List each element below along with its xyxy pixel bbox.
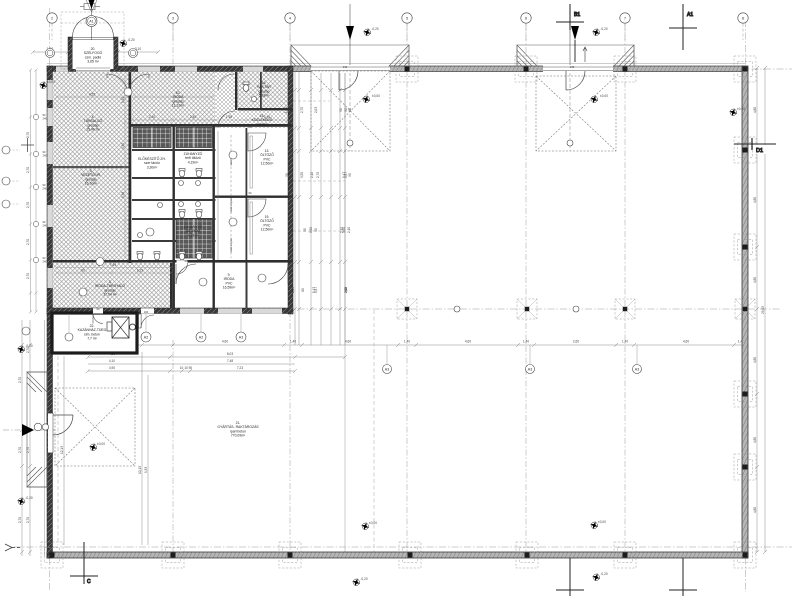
svg-text:A2: A2: [144, 335, 148, 339]
svg-text:±0,00: ±0,00: [600, 94, 608, 98]
svg-text:2,10: 2,10: [347, 227, 351, 233]
svg-text:90: 90: [348, 173, 352, 177]
svg-text:±0,00: ±0,00: [369, 521, 377, 525]
svg-text:2,60: 2,60: [573, 340, 579, 344]
svg-text:2,70: 2,70: [26, 517, 30, 523]
svg-text:szekrenysor: szekrenysor: [229, 237, 233, 252]
svg-text:90: 90: [314, 228, 318, 232]
svg-text:3,65 m²: 3,65 m²: [87, 60, 99, 64]
svg-text:5,18m²: 5,18m²: [259, 94, 270, 98]
svg-text:240: 240: [43, 117, 48, 121]
svg-text:4,60: 4,60: [683, 340, 689, 344]
svg-text:12,13: 12,13: [60, 446, 64, 454]
svg-text:-0,20: -0,20: [600, 27, 607, 31]
svg-text:3,30m²: 3,30m²: [147, 165, 158, 169]
svg-text:szekrenysor: szekrenysor: [229, 197, 233, 212]
svg-text:8: 8: [742, 16, 744, 20]
svg-text:4,10: 4,10: [109, 359, 115, 363]
svg-text:4,60: 4,60: [345, 340, 351, 344]
svg-text:16,10m²: 16,10m²: [85, 182, 98, 186]
svg-text:90: 90: [339, 108, 343, 112]
svg-text:2,70: 2,70: [26, 447, 30, 453]
svg-text:7: 7: [624, 16, 626, 20]
svg-text:240: 240: [43, 154, 48, 158]
svg-text:±0,00: ±0,00: [737, 107, 745, 111]
svg-text:5: 5: [406, 16, 408, 20]
svg-text:11,12m²: 11,12m²: [172, 104, 185, 108]
svg-text:-0,20: -0,20: [360, 577, 367, 581]
svg-text:4: 4: [289, 16, 291, 20]
svg-text:9,33: 9,33: [144, 467, 148, 473]
svg-text:2,40: 2,40: [149, 115, 155, 119]
svg-text:2,70: 2,70: [26, 167, 30, 173]
svg-text:-0,20: -0,20: [25, 344, 32, 348]
svg-text:16,59m²: 16,59m²: [223, 286, 236, 290]
svg-text:37,04 m²: 37,04 m²: [103, 293, 117, 297]
svg-text:±0,00: ±0,00: [598, 520, 606, 524]
svg-text:2,70: 2,70: [26, 273, 30, 279]
svg-text:4,19m²: 4,19m²: [188, 233, 199, 237]
svg-text:5,10: 5,10: [121, 97, 125, 103]
svg-text:D1: D1: [756, 148, 763, 154]
svg-text:2,70: 2,70: [26, 202, 30, 208]
svg-text:-0,20: -0,20: [371, 27, 378, 31]
svg-text:2,70: 2,70: [26, 239, 30, 245]
svg-text:5,38: 5,38: [121, 192, 125, 198]
svg-text:7,23: 7,23: [237, 366, 243, 370]
svg-text:15,46 m²: 15,46 m²: [86, 128, 100, 132]
svg-text:7,48: 7,48: [227, 359, 233, 363]
svg-text:12,50m²: 12,50m²: [261, 228, 274, 232]
svg-text:A1: A1: [89, 19, 93, 23]
svg-text:A1: A1: [687, 12, 693, 18]
svg-text:A3: A3: [528, 367, 532, 371]
svg-text:-0,20: -0,20: [127, 38, 134, 42]
svg-text:4,80: 4,80: [753, 437, 757, 443]
svg-text:B1: B1: [574, 12, 580, 18]
svg-text:2,10: 2,10: [344, 287, 348, 293]
svg-text:A3: A3: [239, 335, 243, 339]
svg-text:4,30: 4,30: [121, 143, 125, 149]
svg-text:60: 60: [301, 288, 305, 292]
svg-text:10,13: 10,13: [138, 466, 142, 474]
svg-text:2,03: 2,03: [314, 107, 318, 113]
svg-text:2,70: 2,70: [316, 172, 320, 178]
svg-text:±0,00: ±0,00: [97, 442, 105, 446]
svg-text:C: C: [87, 579, 91, 585]
svg-text:29,05: 29,05: [761, 306, 765, 314]
svg-text:8,03: 8,03: [227, 352, 233, 356]
svg-text:4,80: 4,80: [753, 277, 757, 283]
svg-text:4,80: 4,80: [753, 357, 757, 363]
svg-text:60: 60: [81, 269, 85, 273]
svg-text:±0,00: ±0,00: [47, 80, 55, 84]
svg-text:2,70: 2,70: [300, 107, 304, 113]
svg-text:greslap: greslap: [256, 122, 267, 126]
svg-text:100: 100: [144, 310, 149, 314]
svg-text:2,70: 2,70: [18, 447, 22, 453]
svg-text:2,10: 2,10: [340, 227, 344, 233]
svg-text:1,40: 1,40: [404, 340, 410, 344]
svg-text:240: 240: [570, 65, 575, 69]
svg-text:2,70: 2,70: [18, 377, 22, 383]
svg-text:4,19m²: 4,19m²: [188, 160, 199, 164]
svg-text:240: 240: [43, 260, 48, 264]
svg-text:±0,00: ±0,00: [372, 94, 380, 98]
svg-text:3: 3: [172, 16, 174, 20]
svg-text:240: 240: [43, 187, 48, 191]
svg-text:2,40: 2,40: [190, 115, 196, 119]
svg-text:3,50: 3,50: [309, 227, 313, 233]
svg-text:1,95: 1,95: [226, 115, 232, 119]
svg-text:1,40: 1,40: [622, 340, 628, 344]
svg-text:10 10 90: 10 10 90: [180, 366, 193, 370]
svg-text:4,80: 4,80: [753, 507, 757, 513]
svg-text:4,60: 4,60: [465, 340, 471, 344]
svg-text:3,50: 3,50: [300, 172, 304, 178]
svg-text:4,80: 4,80: [753, 107, 757, 113]
svg-text:4,60: 4,60: [222, 340, 228, 344]
svg-text:2,70: 2,70: [26, 132, 30, 138]
svg-text:4,90: 4,90: [109, 366, 115, 370]
svg-text:7,7 m²: 7,7 m²: [87, 337, 97, 341]
svg-text:2,70: 2,70: [18, 517, 22, 523]
svg-text:12,50m²: 12,50m²: [261, 162, 274, 166]
svg-text:2,10: 2,10: [310, 172, 314, 178]
svg-text:4,55: 4,55: [89, 93, 95, 97]
svg-text:7,64: 7,64: [110, 263, 116, 267]
svg-text:1,40: 1,40: [290, 340, 296, 344]
svg-text:A3: A3: [385, 367, 389, 371]
svg-text:5,47: 5,47: [314, 287, 318, 293]
svg-text:A2: A2: [199, 335, 203, 339]
svg-text:240: 240: [43, 224, 48, 228]
svg-text:770,09m²: 770,09m²: [231, 434, 246, 438]
svg-text:-0,20: -0,20: [600, 572, 607, 576]
svg-text:-0,20: -0,20: [25, 496, 32, 500]
svg-text:5,47: 5,47: [342, 172, 346, 178]
svg-text:A3: A3: [635, 367, 639, 371]
svg-text:4,80: 4,80: [753, 197, 757, 203]
svg-text:6: 6: [525, 16, 527, 20]
svg-text:2: 2: [51, 16, 53, 20]
svg-text:90: 90: [303, 228, 307, 232]
svg-text:6,19: 6,19: [137, 269, 143, 273]
svg-text:240: 240: [343, 65, 348, 69]
svg-text:1,40: 1,40: [523, 340, 529, 344]
